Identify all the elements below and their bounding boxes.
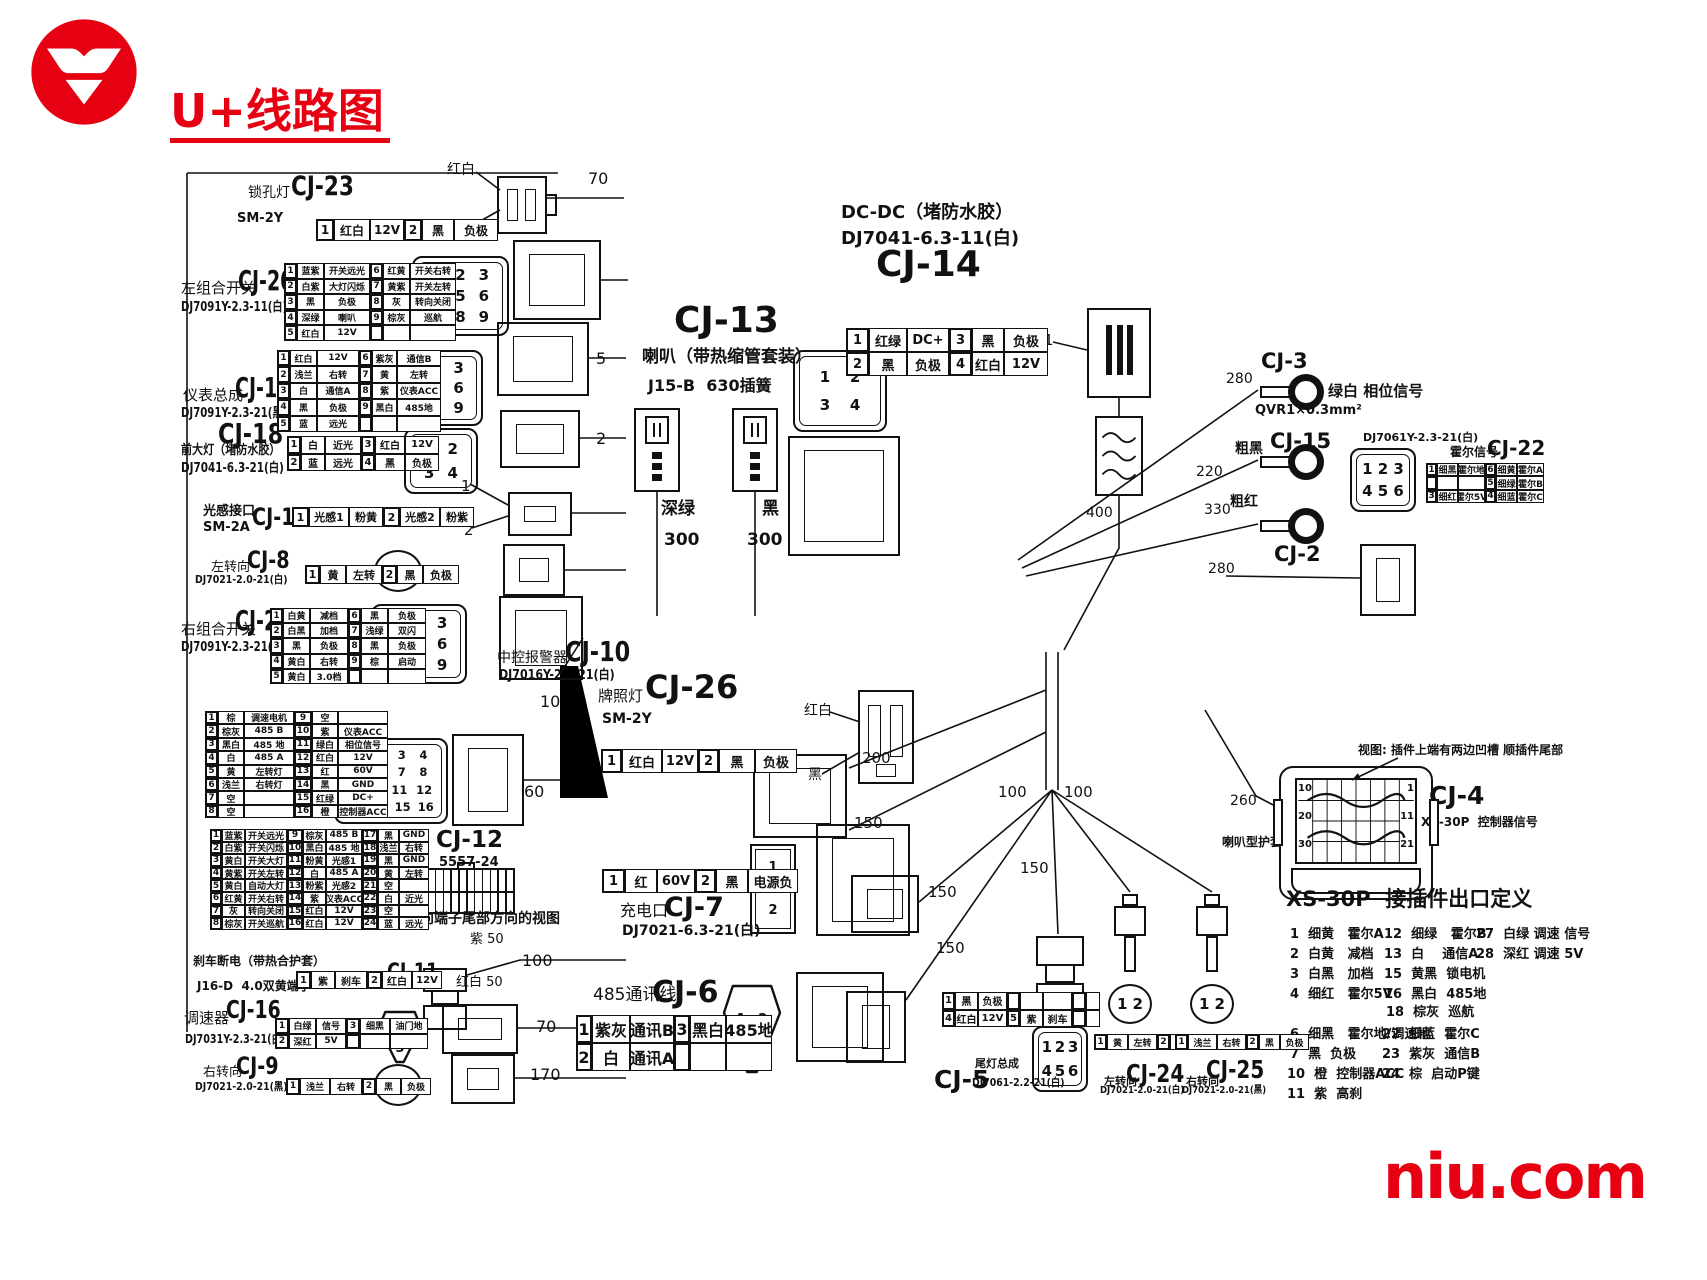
cj2-wire: [1226, 576, 1360, 578]
connector-cj17-mate: [508, 492, 572, 536]
table-cj16: 1白绿信号3细黑油门地2深红5V: [275, 1018, 428, 1049]
connector-tail-boxB: [846, 991, 906, 1063]
pin-cell: 远光: [399, 917, 429, 930]
table-cj12: 1蓝紫开关远光9棕灰485 B17黑GND2白紫开关闪烁10黑白485 地18浅…: [210, 829, 429, 930]
pin-cell: 2: [404, 219, 422, 241]
pin-cell: 3: [270, 638, 283, 653]
pin-cell: 黑白: [690, 1015, 726, 1043]
pin-number: 8: [419, 765, 427, 779]
pin-cell: 12V: [370, 219, 404, 241]
pin-cell: 白黄: [283, 608, 310, 623]
pin-cell: 红白: [382, 971, 412, 989]
pin-cell: 1: [210, 829, 222, 842]
pin-cell: 2: [210, 842, 222, 855]
pin-number: 1: [1199, 995, 1209, 1013]
pin-cell: 1: [576, 1015, 592, 1043]
pin-cell: 18: [362, 842, 378, 855]
pin-cell: 开关远光: [245, 829, 287, 842]
pin-cell: 1: [277, 350, 290, 366]
pin-cell: 6: [205, 778, 218, 791]
pin-cell: 电源负: [748, 869, 798, 893]
pin-cell: 485 地: [244, 738, 294, 751]
pin-number: 3: [453, 359, 463, 377]
pin-cell: [383, 325, 410, 341]
pin-cell: 光感1: [309, 507, 349, 527]
pin-number: 5: [1378, 482, 1388, 500]
pin-cell: 通信A: [317, 383, 359, 399]
pin-cell: 黄白: [283, 654, 310, 669]
pin-cell: 12V: [1004, 352, 1048, 376]
pin-cell: 23: [362, 905, 378, 918]
connector-cj13-spade2: [732, 408, 778, 492]
pin-cell: 开关大灯: [245, 854, 287, 867]
pin-cell: 4: [284, 310, 297, 326]
pin-cell: 1: [270, 608, 283, 623]
table-cj21: 1白黄减档6黑负极2白黑加档7浅绿双闪3黑负极8黑负极4黄白右转9棕启动5黄白3…: [270, 608, 426, 684]
table-cj19: 1红白12V6紫灰通信B2浅兰右转7黄左转3白通信A8紫仪表ACC4黑负极9黑白…: [277, 350, 441, 432]
pin-cell: 2: [576, 1043, 592, 1071]
pin-cell: 红白: [290, 350, 317, 366]
pin-cell: 4: [270, 654, 283, 669]
pin-cell: 转向关闭: [410, 294, 456, 310]
cj4-wire260: [1205, 710, 1279, 808]
pin-cell: 浅兰: [1188, 1034, 1217, 1050]
cj4-row-label-left: 20: [1298, 812, 1312, 823]
connector-inner: [458, 1018, 502, 1040]
pin-cell: 15: [294, 791, 312, 804]
pin-cell: 黑白: [372, 399, 397, 415]
pin-cell: 黑: [378, 829, 399, 842]
pin-cell: 5: [270, 669, 283, 684]
pin-cell: 3: [674, 1015, 690, 1043]
pin-cell: 双闪: [388, 623, 426, 638]
table-cj14: 1红绿DC+3黑负极2黑负极4红白12V: [846, 328, 1048, 376]
pin-cell: 13: [287, 879, 303, 892]
pin-cell: [338, 711, 388, 724]
pin-cell: 红绿: [312, 791, 338, 804]
table-cj22: 1细黑霍尔地6细黄霍尔A5细绿霍尔B3细红霍尔5V4细蓝霍尔C: [1426, 463, 1544, 503]
pin-cell: 近光: [325, 436, 361, 454]
pin-number: 3: [437, 614, 447, 632]
pin-cell: 粉紫: [440, 507, 474, 527]
pin-number: 3: [479, 266, 489, 284]
pin-number: 7: [398, 765, 406, 779]
pin-cell: 3: [949, 328, 972, 352]
cj4-row-label-right: 21: [1400, 840, 1414, 851]
pin-cell: [372, 416, 397, 432]
fan-7: [1052, 790, 1212, 892]
pin-cell: 浅绿: [361, 623, 388, 638]
connector-cj14-big: [788, 436, 900, 556]
pin-cell: 黑: [1259, 1034, 1280, 1050]
table-cj7: 1红60V2黑电源负: [602, 869, 798, 893]
pin-cell: 橙: [312, 805, 338, 818]
pin-cell: [244, 805, 294, 818]
pin-cell: 485 B: [326, 829, 362, 842]
connector-cj3-ring: [1260, 374, 1324, 410]
pin-cell: 17: [362, 829, 378, 842]
pin-number: 16: [418, 800, 434, 814]
connector-inner: [516, 424, 564, 454]
pin-cell: 细黑: [360, 1018, 390, 1034]
pin-cell: 6: [359, 350, 372, 366]
pin-cell: 黄: [218, 765, 244, 778]
pin-cell: 黄紫: [222, 867, 245, 880]
connector-cj10-mate: [452, 734, 524, 826]
pin-cell: 浅兰: [300, 1078, 330, 1095]
pin-cell: 细红: [1437, 490, 1458, 503]
pin-cell: 黄白: [222, 854, 245, 867]
pin-cell: 细黄: [1496, 463, 1517, 476]
pin-cell: [1426, 476, 1437, 489]
pin-cell: 通讯B: [630, 1015, 674, 1043]
pin-cell: 12: [294, 751, 312, 764]
connector-inner: [467, 1068, 499, 1090]
connector-cj22-pins: 123456: [1350, 448, 1416, 512]
pin-cell: 红黄: [222, 892, 245, 905]
pin-cell: 4: [942, 1010, 955, 1028]
pin-cell: 蓝: [301, 454, 325, 472]
cj14-lead: [1053, 342, 1087, 350]
pin-number: 5: [1055, 1062, 1065, 1080]
pin-cell: 仪表ACC: [397, 383, 441, 399]
pin-cell: 22: [362, 892, 378, 905]
pin-cell: 12V: [978, 1010, 1007, 1028]
pin-cell: 1: [1175, 1034, 1188, 1050]
pin-cell: 1: [284, 263, 297, 279]
connector-cj2-ring: [1260, 508, 1324, 544]
pin-cell: 12V: [412, 971, 442, 989]
pin-cell: 11: [287, 854, 303, 867]
connector-inner: [769, 768, 831, 824]
pin-cell: 刹车: [335, 971, 367, 989]
pin-cell: 霍尔C: [1517, 490, 1544, 503]
pin-cell: 空: [312, 711, 338, 724]
pin-cell: 仪表ACC: [326, 892, 362, 905]
pin-cell: 1: [287, 436, 301, 454]
pin-cell: 5: [210, 879, 222, 892]
pin-cell: 右转: [317, 366, 359, 382]
pin-cell: 6: [370, 263, 383, 279]
pin-cell: 红白: [972, 352, 1004, 376]
connector-inner: [1376, 558, 1400, 602]
pin-cell: 485 A: [244, 751, 294, 764]
pin-cell: 红白: [622, 749, 662, 773]
wiring-diagram-page: U+线路图 niu.com 锁孔灯CJ-23SM-2Y红白黑70左组合开关CJ-…: [0, 0, 1707, 1280]
pin-cell: 2: [284, 279, 297, 295]
pin-cell: 紫: [1020, 1010, 1043, 1028]
pin-cell: 485 B: [244, 724, 294, 737]
pin-cell: 1: [942, 992, 955, 1010]
pin-cell: 13: [294, 765, 312, 778]
pin-cell: 4: [1485, 490, 1496, 503]
pin-cell: 黑: [422, 219, 454, 241]
pin-cell: 1: [602, 869, 625, 893]
pin-cell: 红白: [297, 325, 324, 341]
pin-number: 4: [448, 464, 458, 482]
pin-cell: 10: [287, 842, 303, 855]
pin-cell: 右转: [330, 1078, 362, 1095]
cj17-lead2: [472, 516, 508, 528]
pin-number: 9: [437, 656, 447, 674]
pin-cell: 红: [625, 869, 657, 893]
pin-cell: 左转: [399, 867, 429, 880]
connector-cj9-mate: [451, 1054, 515, 1104]
pin-cell: 1: [296, 971, 311, 989]
pin-cell: 3.0档: [310, 669, 348, 684]
pin-cell: 黑白: [218, 738, 244, 751]
pin-cell: 12V: [326, 905, 362, 918]
pin-cell: 1: [205, 711, 218, 724]
pin-number: 2: [1215, 995, 1225, 1013]
pin-cell: 蓝: [378, 917, 399, 930]
pin-cell: [388, 669, 426, 684]
connector-cj25-line: [1196, 894, 1228, 972]
pin-cell: 远光: [325, 454, 361, 472]
pin-cell: 光感2: [400, 507, 440, 527]
pin-cell: 黑: [869, 352, 907, 376]
pin-cell: GND: [399, 854, 429, 867]
pin-cell: 8: [210, 917, 222, 930]
pin-cell: GND: [338, 778, 388, 791]
connector-cj24-line: [1114, 894, 1146, 972]
cj4-row-label-right: 11: [1400, 812, 1414, 823]
pin-cell: 485 A: [326, 867, 362, 880]
pin-cell: 5: [1007, 1010, 1020, 1028]
pin-cell: 12V: [338, 751, 388, 764]
pin-number: 11: [391, 783, 407, 797]
pin-cell: 近光: [399, 892, 429, 905]
pin-cell: 7: [359, 366, 372, 382]
pin-cell: 3: [1426, 490, 1437, 503]
pin-cell: 黑: [376, 1078, 401, 1095]
pin-cell: 黑: [972, 328, 1004, 352]
cj4-row-label-left: 30: [1298, 840, 1312, 851]
pin-cell: 485地: [397, 399, 441, 415]
connector-inner: [804, 450, 884, 542]
pin-cell: 7: [205, 791, 218, 804]
pin-number: 3: [398, 748, 406, 762]
pin-cell: 通信B: [397, 350, 441, 366]
connector-cj15-ring: [1260, 444, 1324, 480]
pin-cell: 细黑: [1437, 463, 1458, 476]
pin-cell: 黄: [378, 867, 399, 880]
table-cj9: 1浅兰右转2黑负极: [286, 1078, 431, 1095]
connector-tail-boxA: [851, 875, 919, 933]
pin-cell: 空: [378, 905, 399, 918]
pin-cell: 红白: [303, 905, 326, 918]
connector-inner: [519, 558, 549, 582]
pin-cell: 2: [698, 749, 719, 773]
pin-cell: [361, 669, 388, 684]
pin-cell: 2: [270, 623, 283, 638]
pin-cell: 开关巡航: [245, 917, 287, 930]
pin-cell: 负极: [755, 749, 797, 773]
pin-cell: 黄: [320, 565, 346, 584]
pin-cell: 1: [601, 749, 622, 773]
pin-cell: DC+: [338, 791, 388, 804]
pin-cell: 右转: [1217, 1034, 1246, 1050]
pin-cell: 9: [370, 310, 383, 326]
pin-cell: 黑: [312, 778, 338, 791]
cj26-lead1: [830, 712, 860, 722]
pin-cell: 刹车: [1043, 1010, 1072, 1028]
pin-cell: 黄白: [222, 879, 245, 892]
pin-cell: 5: [205, 765, 218, 778]
pin-cell: 14: [294, 778, 312, 791]
pin-cell: 白绿: [289, 1018, 316, 1034]
pin-number: 6: [453, 379, 463, 397]
pin-cell: 白: [378, 892, 399, 905]
pin-cell: 霍尔地: [1458, 463, 1485, 476]
pin-cell: 8: [370, 294, 383, 310]
pin-number: 1: [1042, 1038, 1052, 1056]
pin-cell: 细绿: [1496, 476, 1517, 489]
pin-number: 6: [479, 287, 489, 305]
pin-cell: 灰: [222, 905, 245, 918]
connector-cj2-mate: [1360, 544, 1416, 616]
pin-cell: 2: [695, 869, 716, 893]
pin-cell: 2: [275, 1034, 289, 1050]
pin-cell: 白: [592, 1043, 630, 1071]
pin-cell: 负极: [310, 638, 348, 653]
dc-wire400: [1064, 496, 1119, 650]
pin-cell: 棕: [218, 711, 244, 724]
pin-cell: 负极: [423, 565, 459, 584]
pin-cell: 绿白: [312, 738, 338, 751]
pin-cell: 负极: [454, 219, 498, 241]
connector-inner: [529, 254, 585, 306]
pin-cell: 1: [286, 1078, 300, 1095]
pin-number: 1: [820, 368, 830, 386]
pin-cell: [348, 669, 361, 684]
pin-cell: 1: [1094, 1034, 1107, 1050]
pin-number: 2: [455, 266, 465, 284]
cj4-row-label-left: 10: [1298, 784, 1312, 795]
connector-cj8-mate: [503, 544, 565, 596]
pin-cell: 8: [348, 638, 361, 653]
pin-cell: 2: [362, 1078, 376, 1095]
pin-cell: 3: [346, 1018, 360, 1034]
pin-cell: 7: [348, 623, 361, 638]
connector-dc-barbox: [1087, 308, 1151, 398]
pin-cell: 12: [287, 867, 303, 880]
pin-cell: 加档: [310, 623, 348, 638]
pin-cell: 油门地: [390, 1018, 428, 1034]
pin-number: 2: [448, 440, 458, 458]
connector-cj23-plug: [497, 176, 547, 234]
pin-cell: 红白: [375, 436, 405, 454]
pin-cell: 3: [284, 294, 297, 310]
pin-cell: [360, 1034, 390, 1050]
pin-cell: 黑: [378, 854, 399, 867]
connector-cj26-plug: [858, 690, 914, 784]
cj4-row-label-right: 1: [1407, 784, 1414, 795]
pin-number: 6: [1393, 482, 1403, 500]
pin-cell: 黑: [283, 638, 310, 653]
table-cj10: 1棕调速电机9空2棕灰485 B10紫仪表ACC3黑白485 地11绿白相位信号…: [205, 711, 388, 818]
connector-cj25-round: 12: [1190, 984, 1234, 1024]
pin-cell: 1: [292, 507, 309, 527]
pin-number: 2: [1378, 460, 1388, 478]
fan-6: [1052, 790, 1130, 892]
pin-cell: 21: [362, 879, 378, 892]
pin-cell: 左转灯: [244, 765, 294, 778]
pin-cell: 黑: [955, 992, 978, 1010]
pin-number: 15: [395, 800, 411, 814]
pin-cell: 19: [362, 854, 378, 867]
pin-cell: 12V: [317, 350, 359, 366]
pin-cell: 黑: [397, 565, 423, 584]
pin-cell: 15: [287, 905, 303, 918]
pin-cell: 3: [361, 436, 375, 454]
pin-cell: 负极: [907, 352, 949, 376]
pin-cell: [1072, 992, 1086, 1010]
connector-inner: [515, 610, 567, 666]
pin-cell: 负极: [401, 1078, 431, 1095]
pin-cell: 负极: [405, 454, 439, 472]
pin-cell: 棕灰: [222, 917, 245, 930]
pin-number: 6: [1068, 1062, 1078, 1080]
pin-cell: 5V: [316, 1034, 346, 1050]
pin-cell: 9: [287, 829, 303, 842]
pin-cell: [399, 879, 429, 892]
pin-number: 1: [1117, 995, 1127, 1013]
pin-cell: 喇叭: [324, 310, 370, 326]
pin-cell: 黑: [290, 399, 317, 415]
pin-cell: 2: [367, 971, 382, 989]
pin-cell: 8: [205, 805, 218, 818]
pin-number: 9: [453, 399, 463, 417]
pin-cell: 左转: [1128, 1034, 1157, 1050]
pin-cell: 细蓝: [1496, 490, 1517, 503]
pin-cell: 粉黄: [303, 854, 326, 867]
fan-5: [1052, 790, 1058, 934]
pin-cell: 大灯闪烁: [324, 279, 370, 295]
pin-cell: [410, 325, 456, 341]
pin-cell: 紫: [303, 892, 326, 905]
pin-cell: [1020, 992, 1043, 1010]
pin-cell: 黑: [361, 608, 388, 623]
pin-cell: 4: [949, 352, 972, 376]
pin-cell: 光感1: [326, 854, 362, 867]
cj11-wire: [467, 960, 626, 975]
pin-cell: 红白: [334, 219, 370, 241]
pin-cell: 棕: [361, 654, 388, 669]
pin-cell: 红绿: [869, 328, 907, 352]
pin-cell: 负极: [324, 294, 370, 310]
pin-cell: 深红: [289, 1034, 316, 1050]
pin-cell: [244, 791, 294, 804]
pin-cell: 12V: [324, 325, 370, 341]
pin-cell: [370, 325, 383, 341]
pin-cell: 16: [294, 805, 312, 818]
pin-cell: 黑: [375, 454, 405, 472]
pin-cell: 灰: [383, 294, 410, 310]
pin-number: 8: [455, 308, 465, 326]
table-cj5: 1黑负极4红白12V5紫刹车: [942, 992, 1100, 1027]
pin-cell: 蓝: [290, 416, 317, 432]
pin-cell: 深绿: [297, 310, 324, 326]
pin-cell: 红白: [303, 917, 326, 930]
connector-inner: [513, 336, 573, 382]
pin-cell: 白紫: [222, 842, 245, 855]
pin-cell: 2: [383, 507, 400, 527]
pin-cell: 开关闪烁: [245, 842, 287, 855]
pin-cell: 3: [205, 738, 218, 751]
connector-inner: [524, 506, 556, 522]
pin-cell: 霍尔B: [1517, 476, 1544, 489]
